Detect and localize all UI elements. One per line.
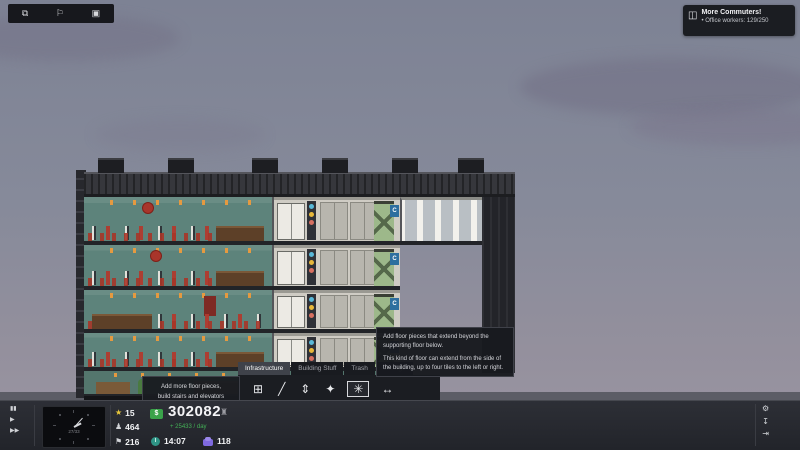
roof-vent (392, 158, 418, 173)
game-screen: ⧉ ⚐ ▣ ◫ More Commuters! • Office workers… (0, 0, 800, 450)
add-floor-tool-icon[interactable]: ⊞ (250, 381, 266, 397)
window-floor-extension[interactable] (400, 197, 482, 245)
money-balance: 302082 (168, 403, 221, 420)
building-floor[interactable]: C (84, 245, 400, 290)
play-button[interactable]: ▶ (10, 417, 19, 424)
roof-vent (98, 158, 124, 173)
elevator-door[interactable] (320, 250, 348, 285)
building-alert-icon: ◫ (688, 10, 697, 36)
star-rating: ★ 15 (115, 408, 135, 418)
restaurant-sign (142, 202, 154, 214)
sign-post (307, 201, 316, 240)
lantern-row (90, 200, 266, 205)
roof-vent (252, 158, 278, 173)
restaurant-zone[interactable] (84, 197, 272, 245)
lantern-row (90, 293, 266, 298)
system-buttons: ⚙ ↧ ⇥ (762, 404, 769, 439)
visitor-count: ⚑ 216 (115, 437, 139, 447)
cloud (95, 118, 265, 152)
divider (34, 405, 35, 446)
elevator-door[interactable] (277, 203, 305, 240)
sign-post (307, 249, 316, 285)
game-clock: 27/33 (42, 406, 106, 448)
layers-icon[interactable]: ⧉ (22, 9, 28, 18)
elevator-door[interactable] (277, 296, 305, 328)
infrastructure-tools: ⊞ ╱ ⇕ ✦ ✳ ↔ (238, 375, 440, 403)
bar-counter (92, 314, 152, 329)
daily-income: + 25433 / day (170, 424, 207, 430)
elevator-car-label: C (390, 205, 399, 217)
elevator-car-label: C (390, 298, 399, 310)
contacts-count: 118 (217, 436, 231, 446)
building-floor[interactable]: C (84, 197, 482, 245)
save-icon[interactable]: ↧ (762, 417, 769, 427)
bar-counter (216, 226, 264, 241)
window-button-bar: ⧉ ⚐ ▣ (8, 4, 114, 23)
star-icon: ★ (115, 409, 122, 417)
tab-infrastructure[interactable]: Infrastructure (238, 362, 290, 375)
restaurant-zone[interactable] (84, 290, 272, 333)
restaurant-door (204, 296, 216, 316)
elevator-core[interactable]: C (272, 245, 400, 290)
exit-icon[interactable]: ⇥ (762, 429, 769, 439)
extended-floor-tool-icon[interactable]: ✳ (347, 381, 369, 397)
elevator-core[interactable]: C (272, 197, 400, 245)
elevator-door[interactable] (320, 202, 348, 240)
notification-panel[interactable]: ◫ More Commuters! • Office workers: 129/… (683, 5, 795, 36)
escalator-tool-icon[interactable]: ╱ (275, 381, 288, 397)
notification-body: • Office workers: 129/250 (701, 18, 768, 24)
roof-vent (458, 158, 484, 173)
roof-vent (322, 158, 348, 173)
restaurant-sign (150, 250, 162, 262)
bar-counter (216, 271, 264, 286)
restaurant-zone[interactable] (84, 245, 272, 290)
visitor-flag-icon: ⚑ (115, 438, 122, 446)
elevator-door[interactable] (320, 295, 348, 328)
elevator-car-label: C (390, 253, 399, 265)
time-of-day-icon (151, 437, 160, 446)
flag-icon[interactable]: ⚐ (56, 9, 64, 18)
population-count: ♟ 464 (115, 422, 139, 432)
bank-icon[interactable]: ♜ (220, 407, 228, 418)
tab-trash[interactable]: Trash (344, 362, 374, 375)
tool-tooltip: Add floor pieces that extend beyond the … (376, 327, 514, 377)
time-of-day: 14:07 (164, 436, 186, 446)
divider (755, 404, 756, 446)
lobby-desk (96, 382, 130, 394)
building-floor[interactable]: C (84, 290, 400, 333)
bridge-floor-tool-icon[interactable]: ↔ (378, 381, 396, 397)
roof-vent (168, 158, 194, 173)
notification-title: More Commuters! (701, 9, 768, 16)
money-icon: $ (150, 409, 163, 419)
day-counter: 27/33 (43, 429, 105, 434)
tab-building-stuff[interactable]: Building Stuff (291, 362, 343, 375)
window-icon[interactable]: ▣ (92, 9, 101, 18)
express-elevator-tool-icon[interactable]: ✦ (322, 381, 338, 397)
sign-post (307, 294, 316, 328)
minute-hand (74, 418, 83, 428)
building-roof[interactable] (84, 172, 515, 197)
lantern-row (90, 248, 266, 253)
person-icon: ♟ (115, 423, 122, 431)
bottom-toolbar: ▮▮ ▶ ▶▶ 27/33 ★ 15 ♟ 464 ⚑ (0, 400, 800, 450)
tab-tooltip: Add more floor pieces, build stairs and … (142, 376, 240, 403)
divider (110, 405, 111, 446)
contacts-icon[interactable] (203, 439, 213, 446)
speed-controls: ▮▮ ▶ ▶▶ (10, 406, 19, 436)
pause-button[interactable]: ▮▮ (10, 406, 19, 413)
elevator-tool-icon[interactable]: ⇕ (297, 381, 313, 397)
elevator-door[interactable] (277, 251, 305, 285)
lantern-row (90, 336, 266, 341)
settings-gear-icon[interactable]: ⚙ (762, 404, 769, 414)
fast-forward-button[interactable]: ▶▶ (10, 428, 19, 435)
